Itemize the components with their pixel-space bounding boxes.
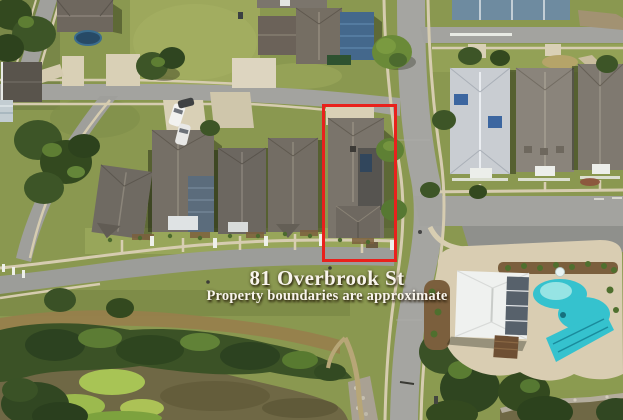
house bbox=[268, 138, 318, 238]
blue-metal-roof-house bbox=[452, 0, 570, 20]
pergola bbox=[493, 335, 518, 359]
solar-panels bbox=[454, 94, 468, 105]
umbrella bbox=[556, 268, 565, 277]
aerial-scene bbox=[0, 0, 623, 420]
aerial-listing-photo: 81 Overbrook St Property boundaries are … bbox=[0, 0, 623, 420]
house bbox=[450, 68, 510, 174]
solar-panels bbox=[488, 116, 502, 128]
house bbox=[57, 0, 122, 34]
house bbox=[218, 148, 266, 234]
house bbox=[516, 68, 574, 172]
solar-panels bbox=[360, 154, 372, 172]
house bbox=[578, 64, 623, 170]
house bbox=[152, 130, 222, 232]
property-address-label: 81 Overbrook St bbox=[250, 268, 405, 289]
boundary-disclaimer-label: Property boundaries are approximate bbox=[206, 289, 447, 304]
green-awning bbox=[327, 55, 351, 65]
pond-algae bbox=[79, 369, 145, 395]
house bbox=[2, 62, 42, 102]
house bbox=[91, 165, 160, 245]
subject-house bbox=[328, 118, 396, 248]
